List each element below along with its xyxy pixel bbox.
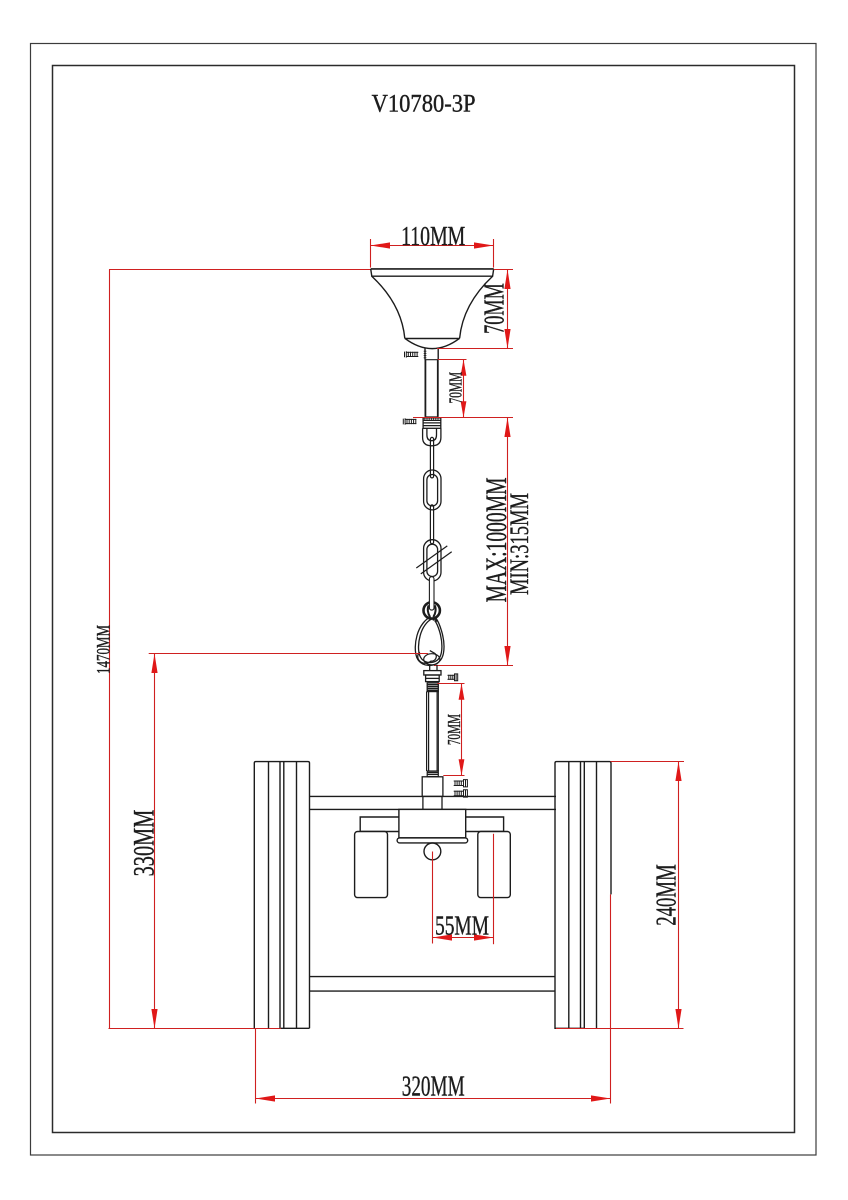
svg-text:V10780-3P: V10780-3P <box>372 91 476 118</box>
svg-text:MIN:315MM: MIN:315MM <box>504 493 534 595</box>
svg-text:70MM: 70MM <box>445 372 465 404</box>
svg-text:240MM: 240MM <box>651 864 683 926</box>
svg-text:320MM: 320MM <box>402 1071 465 1102</box>
svg-text:55MM: 55MM <box>435 910 489 941</box>
svg-text:110MM: 110MM <box>401 221 465 251</box>
svg-text:70MM: 70MM <box>479 283 511 334</box>
svg-text:330MM: 330MM <box>128 810 161 877</box>
svg-text:1470MM: 1470MM <box>94 625 115 674</box>
svg-text:70MM: 70MM <box>444 714 464 745</box>
